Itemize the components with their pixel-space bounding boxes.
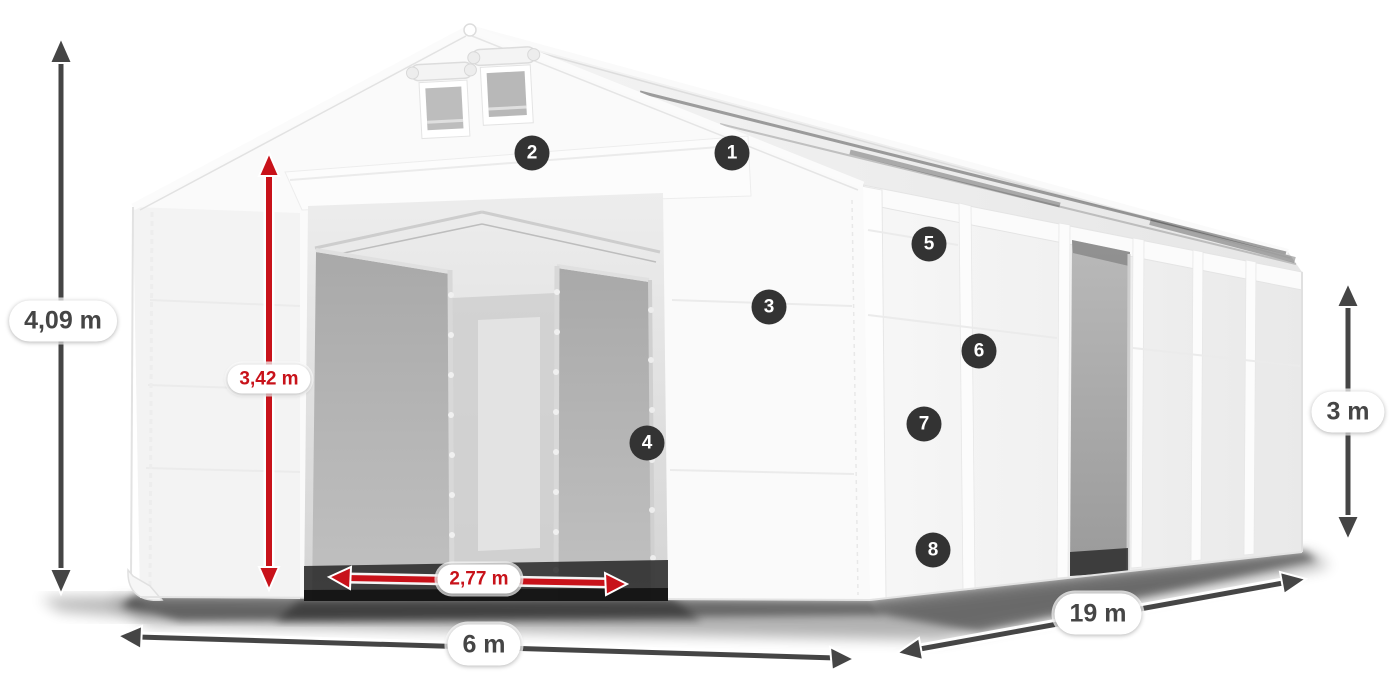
part-marker-7: 7	[907, 407, 942, 442]
tent-dimension-diagram: 4,09 m 3,42 m 2,77 m 6 m 19 m 3 m 1 2 3 …	[0, 0, 1400, 700]
part-marker-1: 1	[715, 136, 750, 171]
dim-label-entrance-width: 2,77 m	[437, 565, 520, 594]
dim-label-clearance-height: 3,42 m	[227, 365, 310, 394]
part-marker-2: 2	[515, 136, 550, 171]
part-marker-4: 4	[630, 426, 665, 461]
part-marker-6: 6	[962, 334, 997, 369]
part-marker-5: 5	[912, 227, 947, 262]
part-marker-3: 3	[752, 290, 787, 325]
dim-label-total-height: 4,09 m	[9, 301, 117, 342]
part-marker-8: 8	[916, 533, 951, 568]
dimension-arrows	[0, 0, 1400, 700]
dim-label-length: 19 m	[1055, 594, 1142, 635]
dim-label-width: 6 m	[447, 625, 520, 666]
dim-label-side-height: 3 m	[1311, 392, 1384, 433]
